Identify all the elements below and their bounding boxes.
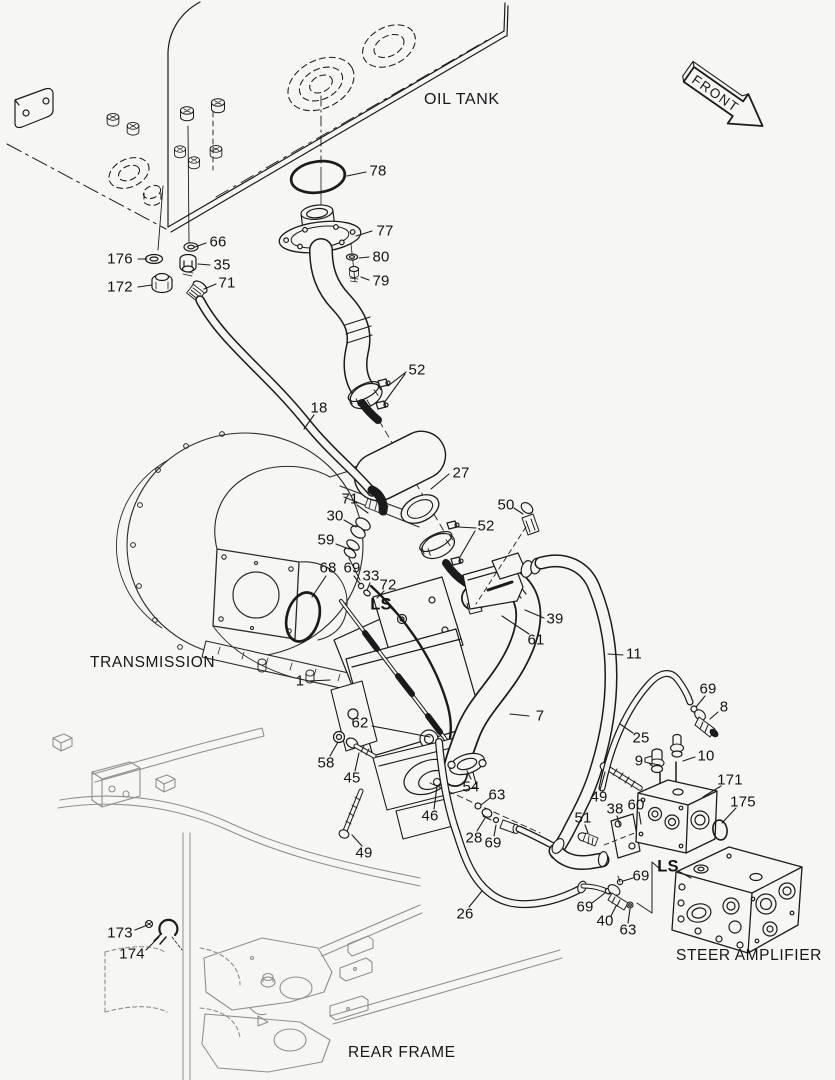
o-ring-78 <box>289 158 347 196</box>
steer-amplifier-drawing <box>637 847 802 953</box>
ls-bracket-line <box>637 862 661 913</box>
parts-diagram: FRONT OIL TANKTRANSMISSIONREAR FRAMESTEE… <box>0 0 835 1080</box>
tank-fittings-drawing <box>146 243 210 302</box>
front-arrow-label: FRONT <box>689 72 742 115</box>
pump-assembly-drawing <box>331 577 483 839</box>
clamp-173-174-drawing <box>146 920 183 950</box>
canister-27 <box>346 423 453 509</box>
oil-tank-drawing <box>7 2 508 250</box>
front-arrow: FRONT <box>675 57 773 140</box>
rear-frame-drawing <box>53 728 562 1080</box>
diagram-artwork: FRONT <box>0 0 835 1080</box>
filler-assembly-drawing <box>275 158 466 583</box>
